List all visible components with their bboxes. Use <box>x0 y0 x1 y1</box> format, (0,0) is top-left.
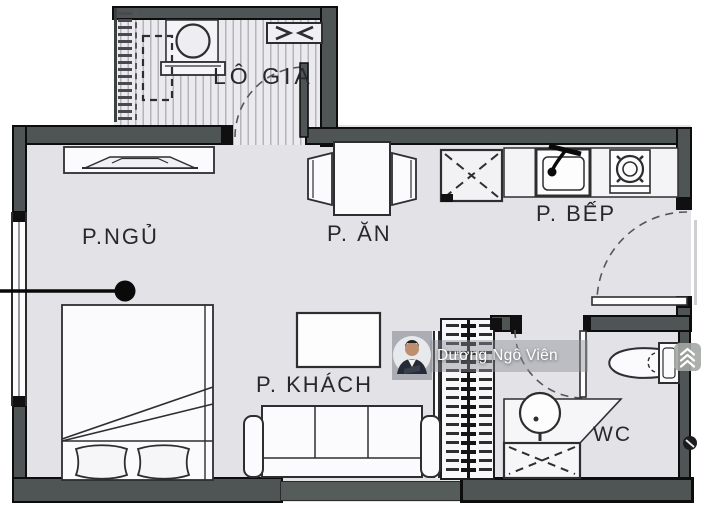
room-label-loggia: LÔ GIA <box>213 63 314 90</box>
wall <box>305 127 692 145</box>
watermark-name: Dương Ngô Viên <box>437 347 558 365</box>
avatar <box>392 331 432 380</box>
wall <box>12 477 283 503</box>
room-label-wc: WC <box>593 423 632 447</box>
apartment-floor <box>12 125 691 502</box>
wall-corner <box>490 318 502 330</box>
window-glass-line <box>18 212 20 406</box>
room-label-kitchen: P. BẾP <box>536 201 616 227</box>
room-label-living: P. KHÁCH <box>256 372 373 398</box>
room-label-bedroom: P.NGỦ <box>82 224 159 250</box>
window-jamb <box>13 212 25 222</box>
door-jamb <box>511 315 522 334</box>
room-label-dining: P. ĂN <box>327 221 392 247</box>
wall <box>460 477 694 503</box>
wall <box>12 405 27 480</box>
wall <box>583 315 691 332</box>
double-chevron-up-icon <box>674 343 701 371</box>
wall <box>280 481 470 501</box>
door-jamb <box>676 197 692 210</box>
wall <box>12 125 27 213</box>
loggia-vent-hatch <box>118 12 132 120</box>
door-jamb <box>583 315 591 332</box>
window-jamb <box>13 396 25 406</box>
wall <box>320 6 338 147</box>
corridor-edge <box>694 220 697 305</box>
door-jamb <box>221 125 232 145</box>
wall <box>12 125 233 145</box>
wall <box>114 8 117 122</box>
floor-plan: LÔ GIA P.NGỦ P. ĂN P. BẾP P. KHÁCH WC Dư… <box>0 0 707 510</box>
wall <box>112 6 338 20</box>
loggia-dashed-line <box>135 12 137 120</box>
